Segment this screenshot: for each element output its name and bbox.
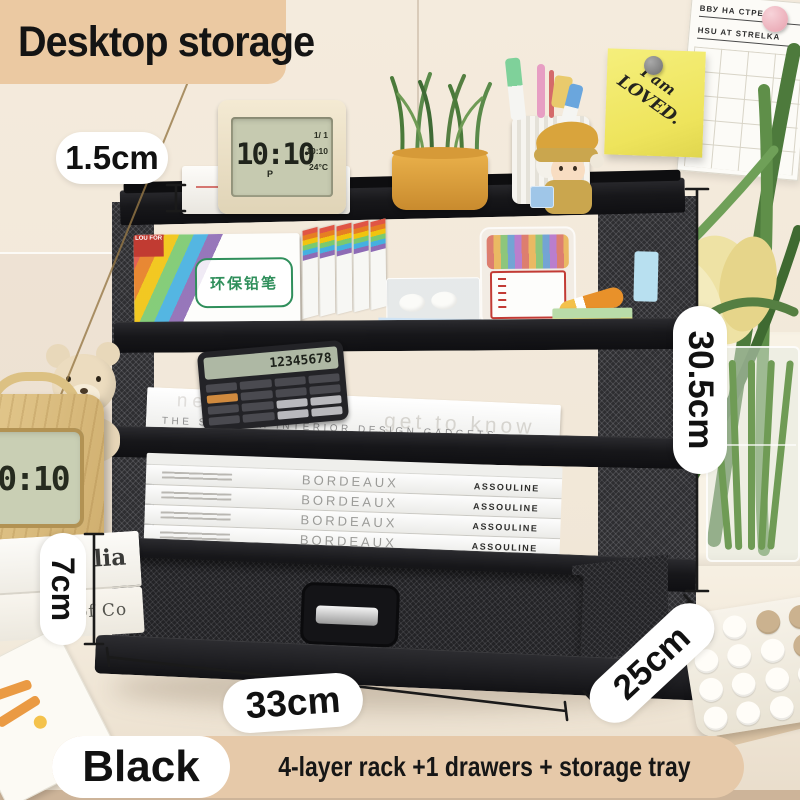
plant-pot (392, 152, 488, 210)
doll-hat-brim (534, 148, 598, 162)
keycap (791, 632, 800, 659)
calc-key (275, 387, 307, 398)
tulip-stem (729, 360, 743, 550)
tulip-stem (748, 360, 755, 550)
clock-screen: 10:10 P 1/ 1 10:10 24°C (231, 117, 333, 197)
dim-width-label: 33cm (221, 671, 364, 735)
pink-pin-icon (762, 6, 788, 32)
clock-temp: 24°C (298, 159, 328, 175)
drawer-handle-bar (316, 605, 379, 625)
calc-key (208, 404, 240, 415)
keycap (763, 666, 790, 693)
doll-hat-pom (590, 154, 604, 168)
dim-drawer-label: 7cm (40, 533, 86, 645)
gift-box (530, 186, 554, 208)
spine-microtext (162, 471, 232, 480)
page-title-text: Desktop storage (18, 18, 314, 67)
keycap (730, 671, 757, 698)
calc-key (276, 398, 308, 409)
book-title: BORDEAUX (301, 492, 398, 510)
book-title: BORDEAUX (300, 512, 397, 530)
pencil-box-brand-tag: LOU FOR (134, 235, 164, 257)
pencil-box-spine (352, 220, 369, 312)
radio-screen: 10:10 (0, 428, 84, 528)
keycap (702, 705, 729, 732)
product-scene: ВВУ НА СТРЕЛКЕ HSU AT STRELKA I am LOVED… (0, 0, 800, 800)
clock-side-info: 1/ 1 10:10 24°C (298, 127, 328, 175)
bottom-banner: Black 4-layer rack +1 drawers + storage … (52, 736, 744, 798)
radio-time: 10:10 (0, 459, 69, 498)
banner-description: 4-layer rack +1 drawers + storage tray (238, 736, 730, 798)
calc-key (242, 401, 274, 412)
page-title: Desktop storage (0, 0, 286, 84)
calc-key (310, 395, 342, 406)
calc-key (240, 379, 272, 390)
jar-contents (487, 234, 569, 269)
calc-key (206, 382, 238, 393)
left-book-top-spine: lia (93, 544, 127, 573)
clock-date: 1/ 1 (298, 127, 328, 143)
book-publisher: ASSOULINE (472, 521, 538, 533)
pencil-box-spine (369, 218, 386, 310)
gray-pin-icon (644, 56, 663, 75)
blue-eraser (633, 251, 658, 302)
green-marker (505, 57, 526, 120)
spine-microtext (161, 511, 231, 520)
drawer-handle (300, 582, 400, 648)
dim-lip-label: 1.5cm (56, 132, 168, 184)
book-publisher: ASSOULINE (473, 501, 539, 513)
desk-clock: 10:10 P 1/ 1 10:10 24°C (218, 100, 346, 214)
calc-key (274, 376, 306, 387)
clock-alarm: 10:10 (298, 143, 328, 159)
dim-height-label: 30.5cm (673, 306, 727, 474)
pinboard-row2: HSU AT STRELKA (697, 26, 800, 48)
calculator: 12345678 (197, 340, 349, 432)
pink-pen (537, 64, 545, 118)
pencil-box-spine (318, 225, 335, 317)
keycap (759, 637, 786, 664)
calc-key (209, 415, 241, 426)
keycap (726, 642, 753, 669)
keycap (787, 603, 800, 630)
calc-key (309, 384, 341, 395)
keycap (768, 694, 795, 721)
rack-frame-1 (114, 318, 690, 353)
calc-key (308, 373, 340, 384)
calc-key (241, 390, 273, 401)
spine-microtext (161, 491, 231, 500)
egg-shape (431, 291, 457, 309)
keycap (697, 676, 724, 703)
clock-ampm: P (267, 169, 273, 179)
pencil-box-spine (302, 227, 319, 319)
color-option-label: Black (82, 742, 199, 792)
keycap (735, 700, 762, 727)
doll-figurine (534, 116, 604, 216)
keycap (754, 609, 781, 636)
calculator-keys (206, 373, 343, 426)
pencil-box-spine (335, 223, 352, 315)
banner-description-text: 4-layer rack +1 drawers + storage tray (278, 751, 690, 783)
color-option-pill: Black (52, 736, 230, 798)
calc-key (207, 393, 239, 404)
calc-key (243, 412, 275, 423)
teddy-eye (96, 376, 101, 382)
pencil-box-label: 环保铅笔 (195, 257, 294, 308)
keycap (796, 661, 800, 688)
colored-pencil-box: LOU FOR 环保铅笔 (134, 233, 301, 325)
keycap (721, 614, 748, 641)
book-title: BORDEAUX (302, 472, 399, 490)
calc-key (311, 406, 343, 417)
calc-key (277, 409, 309, 420)
egg-shape (399, 294, 425, 312)
book-publisher: ASSOULINE (474, 481, 540, 493)
